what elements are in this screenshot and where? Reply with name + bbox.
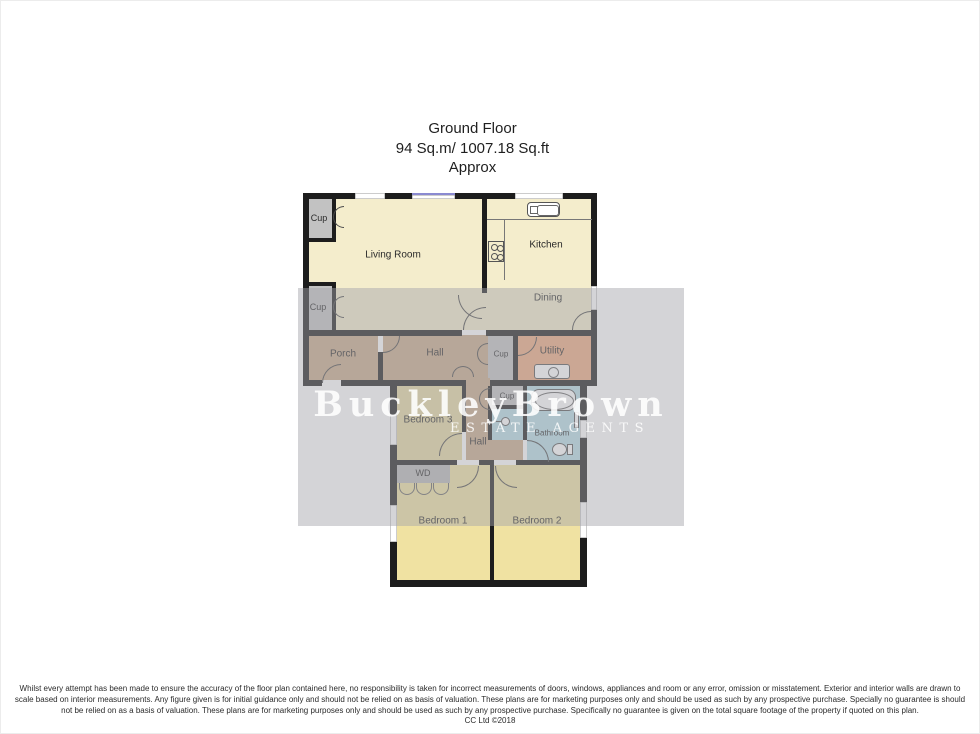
hob-ring <box>497 254 504 261</box>
wardrobe-icon <box>399 483 450 495</box>
window <box>591 286 597 310</box>
room-label-kitchen: Kitchen <box>529 240 562 251</box>
room-top-block <box>308 198 592 330</box>
radiator-icon <box>574 412 579 428</box>
room-hall-lower-spur <box>490 440 523 460</box>
washer-drum <box>548 367 559 378</box>
floorplan-page: { "title": { "line1": "Ground Floor", "l… <box>0 0 980 734</box>
wall <box>482 198 487 293</box>
room-label-utility: Utility <box>540 346 564 357</box>
wall <box>462 386 466 432</box>
double-door-icon <box>479 388 490 410</box>
wall <box>580 386 587 587</box>
wall <box>303 380 322 386</box>
wall <box>378 352 383 380</box>
sink-drainer <box>530 206 538 214</box>
room-label-hall-lower: Hall <box>469 437 486 448</box>
sink-icon <box>527 202 560 217</box>
room-label-hall-upper: Hall <box>426 348 443 359</box>
counter-line <box>487 219 592 220</box>
room-label-bedroom-3: Bedroom 3 <box>404 415 453 426</box>
hob-ring <box>497 245 504 252</box>
bathtub-icon <box>531 389 576 411</box>
wall <box>390 580 587 587</box>
disclaimer-copyright: CC Ltd ©2018 <box>0 716 980 727</box>
room-label-bedroom-2: Bedroom 2 <box>513 516 562 527</box>
disclaimer: Whilst every attempt has been made to en… <box>0 684 980 727</box>
room-label-bedroom-1: Bedroom 1 <box>419 516 468 527</box>
disclaimer-line: not be relied on as a basis of valuation… <box>0 706 980 717</box>
double-door-icon <box>477 343 488 365</box>
toilet-cistern <box>567 444 573 455</box>
disclaimer-line: scale based on interior measurements. An… <box>0 695 980 706</box>
disclaimer-line: Whilst every attempt has been made to en… <box>0 684 980 695</box>
wall <box>397 460 457 465</box>
window <box>580 502 587 538</box>
room-label-porch: Porch <box>330 349 356 360</box>
double-door-icon <box>452 366 474 377</box>
floorplan-diagram: Living Room Kitchen Dining Cup Cup Porch… <box>0 0 980 734</box>
bathtub-inner <box>535 392 574 410</box>
toilet-icon <box>552 443 567 456</box>
room-label-cup-a: Cup <box>311 213 328 223</box>
room-label-cup-b: Cup <box>310 302 327 312</box>
wall <box>492 405 523 409</box>
room-label-bathroom: Bathroom <box>535 429 570 438</box>
basin-icon <box>501 417 510 426</box>
window <box>515 193 563 199</box>
hob-icon <box>488 241 504 262</box>
double-door-icon <box>333 296 344 318</box>
wall <box>303 193 309 386</box>
wall <box>486 330 597 336</box>
room-label-living-room: Living Room <box>365 250 421 261</box>
basin-bracket <box>496 421 501 422</box>
wall <box>341 380 466 386</box>
room-label-cup-c: Cup <box>494 350 509 359</box>
wall <box>308 238 336 242</box>
sink-bowl <box>537 205 559 216</box>
window <box>390 415 397 445</box>
room-label-wd: WD <box>416 468 431 478</box>
wall <box>490 465 494 580</box>
washing-machine-icon <box>534 364 570 379</box>
double-door-icon <box>333 206 344 228</box>
window <box>355 193 385 199</box>
window-glazed <box>412 193 455 199</box>
window <box>580 420 587 438</box>
window <box>390 505 397 542</box>
wall <box>523 386 527 440</box>
counter-line <box>504 220 505 280</box>
room-label-dining: Dining <box>534 293 562 304</box>
room-label-cup-d: Cup <box>500 392 515 401</box>
